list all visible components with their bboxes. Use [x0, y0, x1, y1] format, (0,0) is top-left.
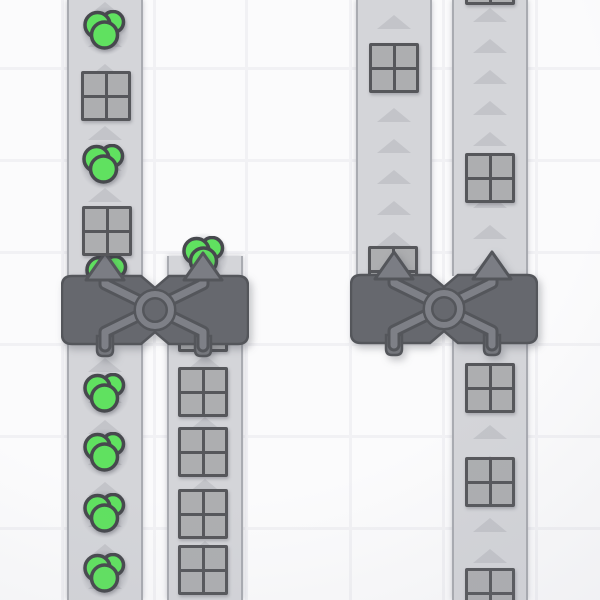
- balancer-right[interactable]: [350, 249, 538, 361]
- item-square-shape[interactable]: [74, 198, 140, 264]
- item-circle-cluster[interactable]: [71, 132, 137, 198]
- square-shape-item: [465, 363, 515, 413]
- berry-circle-front: [91, 156, 117, 182]
- belt-direction-arrow-icon: [377, 108, 411, 122]
- square-quadrant: [372, 46, 393, 67]
- item-square-shape[interactable]: [457, 560, 523, 600]
- square-shape-item: [178, 489, 228, 539]
- square-quadrant: [468, 571, 489, 592]
- square-quadrant: [181, 430, 202, 451]
- circle-cluster-item: [83, 493, 127, 535]
- item-circle-cluster[interactable]: [72, 361, 138, 427]
- item-circle-cluster[interactable]: [72, 481, 138, 547]
- square-quadrant: [181, 492, 202, 513]
- square-shape-item: [465, 153, 515, 203]
- belt-right-d-upper[interactable]: [452, 0, 528, 276]
- belt-direction-arrow-icon: [473, 39, 507, 53]
- item-circle-cluster[interactable]: [72, 0, 138, 64]
- belt-direction-arrow-icon: [473, 225, 507, 239]
- square-quadrant: [205, 430, 226, 451]
- input-arrow-right-icon: [184, 253, 222, 280]
- item-square-shape[interactable]: [170, 419, 236, 485]
- square-quadrant: [492, 484, 513, 505]
- square-quadrant: [468, 595, 489, 600]
- square-shape-item: [465, 568, 515, 600]
- square-quadrant: [205, 572, 226, 593]
- square-quadrant: [181, 370, 202, 391]
- item-square-shape[interactable]: [457, 0, 523, 13]
- square-quadrant: [84, 98, 105, 119]
- square-quadrant: [205, 454, 226, 475]
- input-arrow-left-icon: [375, 252, 413, 279]
- berry-circle-front: [92, 444, 118, 470]
- square-quadrant: [109, 209, 130, 230]
- balancer-left[interactable]: [61, 250, 249, 362]
- square-quadrant: [492, 0, 513, 2]
- item-square-shape[interactable]: [457, 449, 523, 515]
- square-quadrant: [468, 156, 489, 177]
- square-shape-item: [465, 457, 515, 507]
- square-quadrant: [468, 366, 489, 387]
- square-quadrant: [109, 233, 130, 254]
- square-quadrant: [396, 70, 417, 91]
- game-viewport[interactable]: [0, 0, 600, 600]
- input-arrow-right-icon: [473, 252, 511, 279]
- square-quadrant: [181, 516, 202, 537]
- balancer-sprite: [350, 249, 538, 361]
- square-quadrant: [181, 548, 202, 569]
- square-quadrant: [492, 460, 513, 481]
- berry-circle-front: [92, 505, 118, 531]
- circle-cluster-item: [83, 432, 127, 474]
- belt-direction-arrow-icon: [377, 170, 411, 184]
- square-quadrant: [108, 98, 129, 119]
- square-quadrant: [468, 484, 489, 505]
- balancer-sprite: [61, 250, 249, 362]
- belt-direction-arrow-icon: [377, 201, 411, 215]
- item-circle-cluster[interactable]: [72, 420, 138, 486]
- square-quadrant: [205, 548, 226, 569]
- circle-cluster-item: [83, 10, 127, 52]
- square-quadrant: [108, 74, 129, 95]
- square-quadrant: [492, 390, 513, 411]
- square-shape-item: [81, 71, 131, 121]
- belt-direction-arrow-icon: [377, 15, 411, 29]
- belt-direction-arrow-icon: [473, 101, 507, 115]
- circle-cluster-item: [83, 373, 127, 415]
- square-shape-item: [465, 0, 515, 5]
- square-quadrant: [468, 180, 489, 201]
- square-quadrant: [492, 595, 513, 600]
- square-quadrant: [205, 394, 226, 415]
- square-quadrant: [85, 209, 106, 230]
- square-quadrant: [181, 394, 202, 415]
- square-quadrant: [181, 572, 202, 593]
- belt-direction-arrow-icon: [377, 139, 411, 153]
- berry-circle-front: [92, 385, 118, 411]
- item-square-shape[interactable]: [73, 63, 139, 129]
- square-shape-item: [82, 206, 132, 256]
- circle-cluster-item: [82, 144, 126, 186]
- square-shape-item: [178, 545, 228, 595]
- item-square-shape[interactable]: [170, 537, 236, 600]
- square-quadrant: [205, 492, 226, 513]
- berry-circle-front: [92, 565, 118, 591]
- item-square-shape[interactable]: [457, 355, 523, 421]
- circle-cluster-item: [83, 553, 127, 595]
- square-quadrant: [468, 0, 489, 2]
- square-quadrant: [84, 74, 105, 95]
- item-square-shape[interactable]: [361, 35, 427, 101]
- square-quadrant: [492, 366, 513, 387]
- square-quadrant: [492, 571, 513, 592]
- square-quadrant: [492, 156, 513, 177]
- belt-direction-arrow-icon: [473, 425, 507, 439]
- square-shape-item: [178, 427, 228, 477]
- square-quadrant: [468, 460, 489, 481]
- square-quadrant: [492, 180, 513, 201]
- square-quadrant: [396, 46, 417, 67]
- square-quadrant: [205, 516, 226, 537]
- square-shape-item: [369, 43, 419, 93]
- square-quadrant: [205, 370, 226, 391]
- square-quadrant: [181, 454, 202, 475]
- square-quadrant: [85, 233, 106, 254]
- square-quadrant: [372, 70, 393, 91]
- belt-direction-arrow-icon: [473, 132, 507, 146]
- item-square-shape[interactable]: [170, 359, 236, 425]
- square-shape-item: [178, 367, 228, 417]
- belt-direction-arrow-icon: [473, 70, 507, 84]
- square-quadrant: [468, 390, 489, 411]
- item-circle-cluster[interactable]: [72, 541, 138, 600]
- berry-circle-front: [92, 22, 118, 48]
- item-square-shape[interactable]: [457, 145, 523, 211]
- belt-direction-arrow-icon: [473, 518, 507, 532]
